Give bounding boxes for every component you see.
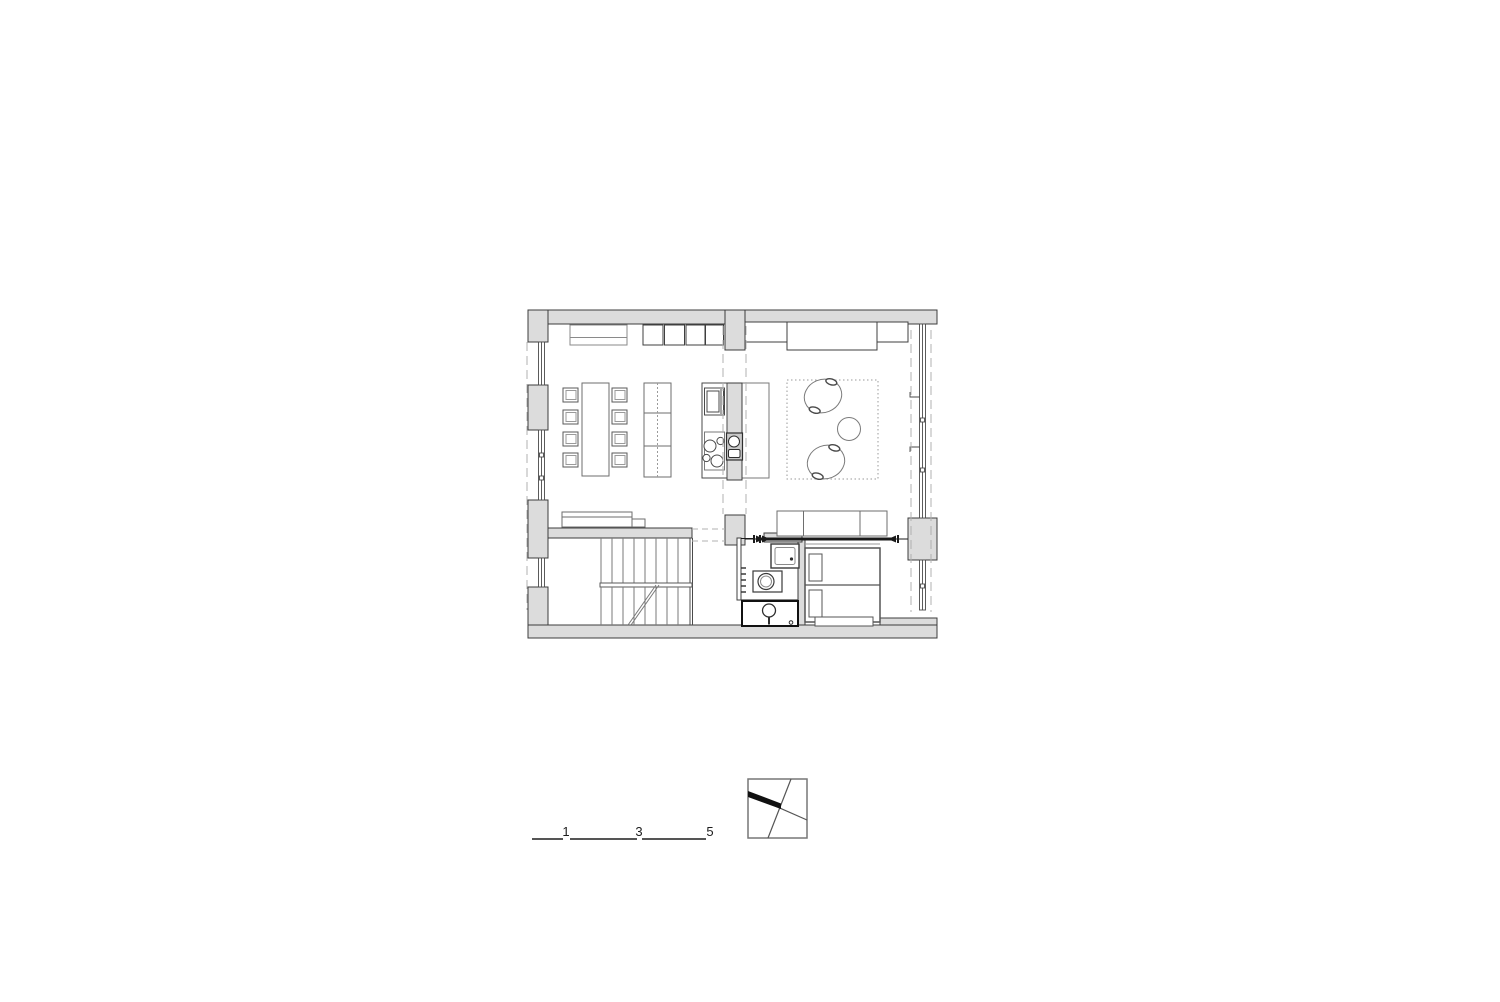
wall-column [725, 515, 745, 545]
bathroom [737, 538, 799, 626]
sink-unit [753, 571, 782, 592]
pillow [809, 590, 822, 617]
wall-bottom [528, 625, 937, 638]
wc-room [742, 601, 798, 626]
sideboard [570, 325, 627, 345]
stair-treads-upper [601, 538, 678, 583]
bed-bench [815, 617, 873, 626]
scale-label: 5 [706, 824, 713, 839]
stair-treads-lower [601, 587, 678, 625]
scale-label: 1 [562, 824, 569, 839]
shelf-unit [644, 383, 671, 477]
bedroom [805, 544, 880, 626]
scale-label: 3 [635, 824, 642, 839]
chair [563, 388, 578, 402]
wall-cabinets [643, 325, 724, 345]
floor-plan-drawing: 1 3 5 [0, 0, 1500, 1002]
media-cabinets [745, 322, 908, 350]
pillow [809, 554, 822, 581]
chair [563, 432, 578, 446]
stair-handrail [600, 583, 692, 587]
island-sink [727, 433, 743, 460]
sofa [777, 511, 887, 536]
wall-pier-kitchen [725, 310, 745, 350]
slide-arrow-icon [888, 536, 896, 543]
chair [563, 410, 578, 424]
wall-pier [528, 310, 548, 342]
scale-bar: 1 3 5 [532, 824, 714, 839]
window-right [910, 324, 926, 610]
wall-pier [528, 385, 548, 430]
stair-direction-line [628, 585, 659, 625]
wall-ticks [741, 568, 746, 592]
side-table [838, 418, 861, 441]
kitchen [702, 383, 769, 480]
bench [562, 512, 645, 527]
chair [563, 453, 578, 467]
washbasin [771, 544, 799, 568]
armchair [802, 440, 850, 485]
wall-pier [528, 500, 548, 558]
wall-kitchen-strip-over [727, 383, 742, 480]
wall-pier-right [908, 518, 937, 560]
cooktop [703, 432, 725, 470]
dining-area [562, 325, 724, 527]
dining-table [582, 383, 609, 476]
north-arrow-icon [748, 779, 807, 838]
chair [612, 410, 627, 424]
bathroom-wall [737, 538, 741, 600]
chair [612, 432, 627, 446]
wall-stair [548, 528, 692, 538]
chair [612, 388, 627, 402]
chair [612, 453, 627, 467]
stairs [600, 538, 693, 625]
page: 1 3 5 [0, 0, 1500, 1002]
